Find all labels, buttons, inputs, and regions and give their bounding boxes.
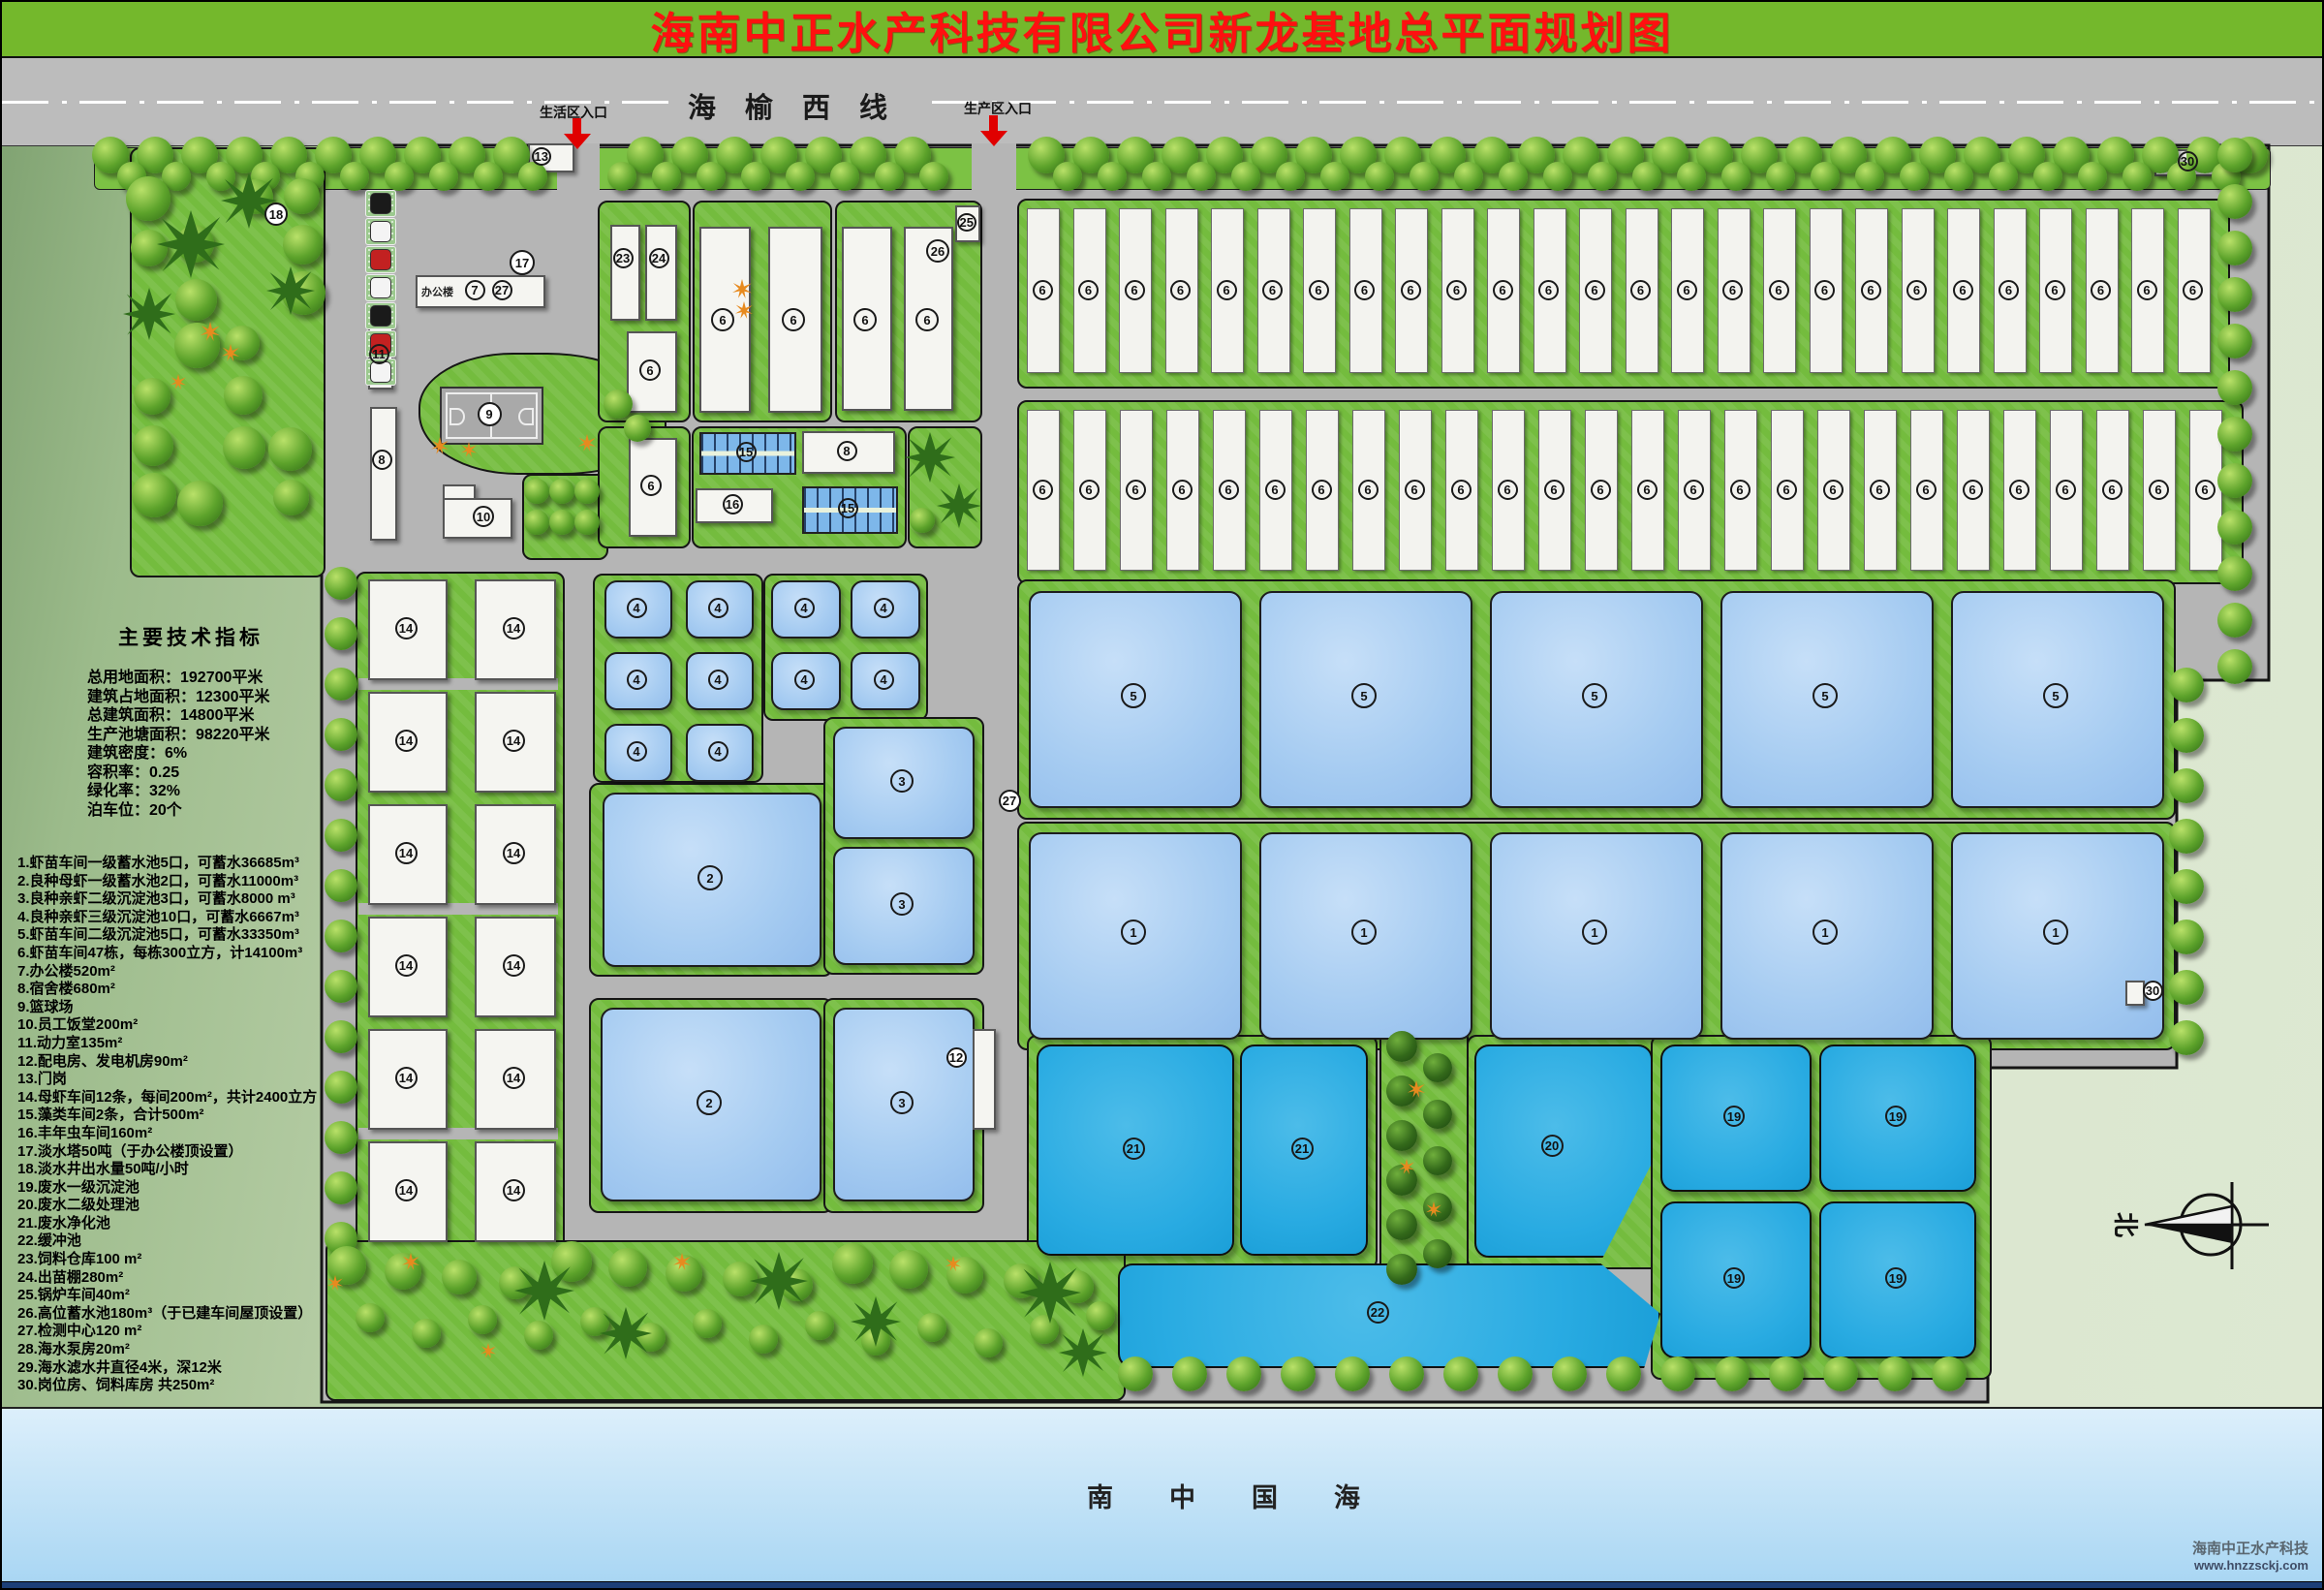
legend-item: 4.良种亲虾三级沉淀池10口，可蓄水6667m³	[17, 909, 317, 927]
marker-water-tower: 17	[510, 250, 535, 275]
tree-icon	[2169, 869, 2204, 904]
tree-icon	[356, 1303, 385, 1332]
tech-indicators-block: 主要技术指标 总用地面积：192700平米建筑占地面积：12300平米总建筑面积…	[87, 622, 270, 820]
highway-name-label: 海榆西线	[680, 85, 924, 126]
marker-workshop: 6	[1544, 480, 1565, 500]
tree-icon	[830, 162, 859, 191]
marker-pond3: 3	[890, 1091, 914, 1114]
tree-icon	[1142, 162, 1171, 191]
footer-bar	[2, 1581, 2322, 1590]
legend-item: 23.饲料仓库100 m²	[17, 1251, 317, 1269]
marker-workshop: 6	[1405, 480, 1425, 500]
legend-item: 8.宿舍楼680m²	[17, 981, 317, 999]
marker-pond21: 21	[1291, 1138, 1314, 1160]
marker-feed-warehouse: 23	[613, 248, 634, 268]
tree-icon	[1226, 1356, 1261, 1391]
tree-icon	[1098, 162, 1127, 191]
tree-icon	[325, 768, 357, 801]
tree-icon	[1606, 1356, 1641, 1391]
tree-icon	[177, 481, 223, 526]
site-plan-page: 海南中正水产科技有限公司新龙基地总平面规划图 海榆西线 生活区入口 生产区入口 …	[0, 0, 2324, 1590]
marker-workshop: 6	[711, 308, 734, 331]
marker-workshop: 6	[853, 308, 877, 331]
office-label: 办公楼	[421, 284, 453, 299]
legend-item: 29.海水滤水井直径4米，深12米	[17, 1359, 317, 1378]
tree-icon	[549, 479, 574, 504]
marker-pond4: 4	[627, 670, 647, 690]
tree-icon	[1410, 162, 1439, 191]
tree-icon	[2169, 718, 2204, 753]
tree-icon	[1944, 162, 1973, 191]
tech-line: 绿化率：32%	[87, 782, 270, 801]
tree-icon	[133, 425, 173, 466]
legend-item: 27.检测中心120 m²	[17, 1323, 317, 1341]
tree-icon	[1811, 162, 1840, 191]
tree-icon	[284, 178, 320, 214]
tree-icon	[2217, 184, 2252, 219]
marker-workshop: 6	[1823, 480, 1844, 500]
tree-icon	[1423, 1053, 1452, 1082]
entrance-right-arrowhead-icon	[980, 131, 1007, 146]
tree-icon	[2217, 138, 2252, 172]
watermark-url: www.hnzzsckj.com	[2192, 1557, 2309, 1574]
marker-pond3: 3	[890, 769, 914, 793]
marker-workshop: 6	[1953, 280, 1973, 300]
marker-pond4: 4	[874, 598, 894, 618]
tree-icon	[429, 162, 458, 191]
marker-workshop: 6	[1916, 480, 1937, 500]
tree-icon	[1030, 1315, 1059, 1344]
marker-workshop: 6	[2056, 480, 2076, 500]
tree-icon	[875, 162, 904, 191]
marker-workshop: 6	[1125, 280, 1145, 300]
tree-icon	[2217, 603, 2252, 638]
legend-item: 20.废水二级处理池	[17, 1197, 317, 1215]
marker-workshop: 6	[1170, 280, 1191, 300]
marker-workshop: 6	[1219, 480, 1239, 500]
tree-icon	[1823, 1356, 1858, 1391]
marker-workshop: 6	[2045, 280, 2065, 300]
marker-workshop: 6	[1401, 280, 1421, 300]
marker-pond1: 1	[1351, 920, 1377, 945]
tree-icon	[1715, 1356, 1750, 1391]
marker-workshop: 6	[1999, 280, 2019, 300]
tree-icon	[624, 415, 651, 442]
legend-item: 26.高位蓄水池180m³（于已建车间屋顶设置）	[17, 1305, 317, 1324]
marker-workshop: 6	[1451, 480, 1472, 500]
tree-icon	[697, 162, 726, 191]
tree-icon	[2217, 510, 2252, 545]
tree-icon	[1386, 1209, 1417, 1240]
tree-icon	[1454, 162, 1483, 191]
marker-workshop: 6	[1677, 280, 1697, 300]
marker-testing-center: 27	[492, 280, 512, 300]
marker-workshop: 6	[2183, 280, 2203, 300]
tree-icon	[2169, 1020, 2204, 1055]
marker-workshop: 6	[1684, 480, 1704, 500]
marker-workshop: 6	[1637, 480, 1658, 500]
marker-power-distribution: 12	[946, 1047, 967, 1068]
tree-icon	[974, 1328, 1003, 1357]
tree-icon	[325, 1020, 357, 1053]
legend-item: 9.篮球场	[17, 999, 317, 1017]
tree-icon	[1118, 1356, 1153, 1391]
tech-indicators-lines: 总用地面积：192700平米建筑占地面积：12300平米总建筑面积：14800平…	[87, 669, 270, 820]
tree-icon	[175, 279, 217, 321]
tree-icon	[1231, 162, 1260, 191]
tree-icon	[1660, 1356, 1695, 1391]
marker-workshop: 6	[2137, 280, 2157, 300]
marker-pond5: 5	[1351, 683, 1377, 708]
tree-icon	[910, 508, 935, 533]
tree-icon	[1389, 1356, 1424, 1391]
marker-store-house: 30	[2178, 151, 2198, 171]
tree-icon	[889, 1250, 928, 1289]
tree-icon	[2169, 668, 2204, 702]
legend-item: 24.出苗棚280m²	[17, 1269, 317, 1288]
tree-icon	[1423, 1100, 1452, 1129]
marker-brine-shrimp: 16	[723, 494, 743, 514]
marker-mother-shrimp: 14	[503, 730, 525, 752]
marker-basketball-court: 9	[478, 402, 502, 426]
tree-icon	[1335, 1356, 1370, 1391]
tree-icon	[2169, 819, 2204, 854]
marker-pond4: 4	[627, 598, 647, 618]
marker-dormitory2: 8	[837, 441, 857, 461]
marker-pond4: 4	[627, 741, 647, 762]
tree-icon	[126, 176, 170, 221]
entrance-left-arrowhead-icon	[564, 134, 591, 149]
power-distribution-building	[973, 1029, 996, 1130]
tree-icon	[1855, 162, 1884, 191]
tree-icon	[518, 162, 547, 191]
tech-line: 总用地面积：192700平米	[87, 669, 270, 688]
tech-line: 容积率：0.25	[87, 764, 270, 783]
marker-mother-shrimp: 14	[503, 954, 525, 977]
marker-workshop: 6	[2091, 280, 2111, 300]
marker-pond19: 19	[1885, 1106, 1906, 1127]
tree-icon	[524, 1321, 553, 1350]
marker-pond4: 4	[874, 670, 894, 690]
marker-pond19: 19	[1723, 1106, 1745, 1127]
marker-pond1: 1	[1582, 920, 1607, 945]
tree-icon	[693, 1309, 722, 1338]
tree-icon	[223, 426, 265, 469]
tree-icon	[1989, 162, 2018, 191]
legend-item: 28.海水泵房20m²	[17, 1341, 317, 1359]
tree-icon	[805, 1311, 834, 1340]
tree-icon	[327, 1246, 366, 1285]
feed-warehouse	[610, 225, 640, 321]
marker-workshop: 6	[1309, 280, 1329, 300]
tree-icon	[325, 970, 357, 1003]
tree-icon	[325, 718, 357, 751]
car-icon	[370, 193, 391, 214]
tree-icon	[524, 510, 549, 535]
store-house-east	[2125, 981, 2145, 1006]
marker-workshop: 6	[1354, 280, 1375, 300]
marker-workshop: 6	[1446, 280, 1467, 300]
marker-pond4: 4	[794, 598, 815, 618]
marker-pond19: 19	[1885, 1267, 1906, 1289]
legend-item: 15.藻类车间2条，合计500m²	[17, 1107, 317, 1125]
marker-algae: 15	[838, 498, 858, 518]
north-compass-icon: 北	[2085, 1176, 2288, 1283]
watermark-company: 海南中正水产科技	[2192, 1541, 2309, 1557]
marker-workshop: 6	[782, 308, 805, 331]
marker-pond4: 4	[708, 670, 728, 690]
marker-workshop: 6	[1033, 480, 1053, 500]
marker-canteen: 10	[473, 506, 494, 527]
entrance-right-arrow-icon	[989, 115, 998, 131]
tree-icon	[2033, 162, 2062, 191]
marker-workshop: 6	[1079, 480, 1100, 500]
tree-icon	[2123, 162, 2152, 191]
tree-icon	[604, 390, 633, 419]
tree-icon	[2217, 277, 2252, 312]
car-icon	[370, 249, 391, 270]
tree-icon	[385, 162, 414, 191]
marker-pond4: 4	[708, 598, 728, 618]
marker-store-house-east: 30	[2143, 981, 2163, 1001]
marker-workshop: 6	[1033, 280, 1053, 300]
tree-icon	[273, 480, 309, 515]
tree-icon	[1498, 1356, 1533, 1391]
tree-icon	[1443, 1356, 1478, 1391]
tree-icon	[1281, 1356, 1316, 1391]
tree-icon	[1423, 1146, 1452, 1175]
watermark: 海南中正水产科技 www.hnzzsckj.com	[2192, 1541, 2309, 1574]
tree-icon	[2217, 463, 2252, 498]
sea-name-label: 南中国海	[1087, 1477, 1416, 1514]
legend-item: 17.淡水塔50吨（于办公楼顶设置）	[17, 1143, 317, 1162]
tree-icon	[283, 225, 323, 265]
tree-icon	[325, 1071, 357, 1104]
tree-icon	[832, 1243, 873, 1284]
legend-item: 6.虾苗车间47栋，每栋300立方，计14100m³	[17, 945, 317, 963]
tree-icon	[325, 617, 357, 650]
tree-icon	[2217, 231, 2252, 265]
tree-icon	[1386, 1031, 1417, 1062]
marker-workshop: 6	[1262, 280, 1283, 300]
marker-workshop: 6	[1493, 280, 1513, 300]
legend-item: 13.门岗	[17, 1071, 317, 1089]
legend-item: 22.缓冲池	[17, 1232, 317, 1251]
tree-icon	[1386, 1120, 1417, 1151]
tree-icon	[2169, 768, 2204, 803]
marker-office: 7	[465, 280, 485, 300]
page-title: 海南中正水产科技有限公司新龙基地总平面规划图	[650, 0, 1673, 61]
tree-icon	[2217, 649, 2252, 684]
tree-icon	[2217, 556, 2252, 591]
tree-icon	[442, 1260, 477, 1294]
tree-icon	[412, 1319, 441, 1348]
tree-icon	[741, 162, 770, 191]
marker-workshop: 6	[1498, 480, 1518, 500]
marker-workshop: 6	[1591, 480, 1611, 500]
tree-icon	[1187, 162, 1216, 191]
tech-indicators-title: 主要技术指标	[118, 622, 270, 651]
tree-icon	[134, 378, 170, 415]
tree-icon	[325, 567, 357, 600]
marker-workshop: 6	[1906, 280, 1927, 300]
marker-workshop: 6	[1861, 280, 1881, 300]
marker-pond4: 4	[794, 670, 815, 690]
tree-icon	[2078, 162, 2107, 191]
legend-item: 19.废水一级沉淀池	[17, 1179, 317, 1198]
marker-pond19: 19	[1723, 1267, 1745, 1289]
tree-icon	[325, 869, 357, 902]
tree-icon	[2217, 324, 2252, 359]
marker-pond4: 4	[708, 741, 728, 762]
tree-icon	[2217, 417, 2252, 452]
marker-mother-shrimp: 14	[395, 954, 418, 977]
tree-icon	[524, 479, 549, 504]
tree-icon	[132, 473, 176, 517]
road	[972, 143, 1016, 192]
tree-icon	[1276, 162, 1305, 191]
tree-icon	[608, 1248, 647, 1287]
car-icon	[370, 361, 391, 383]
legend-block: 1.虾苗车间一级蓄水池5口，可蓄水36685m³2.良种母虾一级蓄水池2口，可蓄…	[17, 855, 317, 1395]
legend-item: 5.虾苗车间二级沉淀池5口，可蓄水33350m³	[17, 926, 317, 945]
tree-icon	[325, 819, 357, 852]
header-band: 海南中正水产科技有限公司新龙基地总平面规划图	[2, 2, 2322, 58]
tree-icon	[749, 1325, 778, 1354]
marker-workshop: 6	[1172, 480, 1193, 500]
seedling-shed	[645, 225, 677, 321]
marker-workshop: 6	[639, 359, 661, 381]
marker-pond3: 3	[890, 892, 914, 916]
marker-pond5: 5	[2043, 683, 2068, 708]
legend-item: 30.岗位房、饲料库房 共250m²	[17, 1377, 317, 1395]
tree-icon	[474, 162, 503, 191]
marker-workshop: 6	[1722, 280, 1743, 300]
marker-mother-shrimp: 14	[503, 842, 525, 864]
marker-workshop: 6	[2009, 480, 2030, 500]
tree-icon	[574, 510, 600, 535]
legend-item: 11.动力室135m²	[17, 1035, 317, 1053]
tree-icon	[723, 1262, 758, 1296]
tree-icon	[1588, 162, 1617, 191]
legend-item: 25.锅炉车间40m²	[17, 1287, 317, 1305]
tech-line: 建筑占地面积：12300平米	[87, 688, 270, 707]
tree-icon	[1061, 1270, 1094, 1303]
legend-item: 2.良种母虾一级蓄水池2口，可蓄水11000m³	[17, 873, 317, 891]
tree-icon	[1721, 162, 1751, 191]
marker-algae: 15	[736, 442, 757, 462]
tech-line: 建筑密度：6%	[87, 744, 270, 764]
north-label: 北	[2111, 1212, 2140, 1237]
marker-workshop: 6	[1777, 480, 1797, 500]
tree-icon	[2169, 920, 2204, 954]
tree-icon	[1053, 162, 1082, 191]
entrance-right-label: 生产区入口	[964, 99, 1032, 118]
marker-power-room: 11	[369, 344, 389, 364]
car-icon	[370, 305, 391, 327]
tree-icon	[325, 920, 357, 952]
tree-icon	[1086, 1301, 1115, 1330]
marker-workshop: 6	[1265, 480, 1286, 500]
tree-icon	[1320, 162, 1349, 191]
marker-mother-shrimp: 14	[503, 1067, 525, 1089]
tree-icon	[1365, 162, 1394, 191]
marker-workshop: 6	[640, 475, 662, 496]
marker-workshop: 6	[2195, 480, 2216, 500]
tree-icon	[1769, 1356, 1804, 1391]
marker-workshop: 6	[1730, 480, 1751, 500]
tree-icon	[1552, 1356, 1587, 1391]
tree-icon	[919, 162, 948, 191]
marker-pond5: 5	[1121, 683, 1146, 708]
tree-icon	[468, 1305, 497, 1334]
tree-icon	[224, 376, 263, 415]
marker-workshop: 6	[1630, 280, 1651, 300]
tree-icon	[499, 1266, 532, 1299]
marker-junction: 27	[999, 790, 1021, 812]
marker-workshop: 6	[1358, 480, 1379, 500]
entrance-left-arrow-icon	[573, 118, 581, 134]
tree-icon	[1632, 162, 1661, 191]
legend-item: 12.配电房、发电机房90m²	[17, 1053, 317, 1072]
tree-icon	[1499, 162, 1528, 191]
tree-icon	[325, 1171, 357, 1204]
legend-item: 7.办公楼520m²	[17, 963, 317, 982]
tree-icon	[917, 1313, 946, 1342]
marker-workshop: 6	[1078, 280, 1099, 300]
car-icon	[370, 221, 391, 242]
tree-icon	[1877, 1356, 1912, 1391]
marker-pond22: 22	[1367, 1301, 1389, 1324]
marker-pond21: 21	[1123, 1138, 1145, 1160]
legend-item: 10.员工饭堂200m²	[17, 1016, 317, 1035]
tree-icon	[607, 162, 636, 191]
legend-item: 1.虾苗车间一级蓄水池5口，可蓄水36685m³	[17, 855, 317, 873]
tree-icon	[1677, 162, 1706, 191]
marker-pond1: 1	[2043, 920, 2068, 945]
marker-freshwater-well: 18	[264, 203, 288, 226]
tech-line: 泊车位：20个	[87, 801, 270, 821]
tech-line: 总建筑面积：14800平米	[87, 706, 270, 726]
legend-item: 3.良种亲虾二级沉淀池3口，可蓄水8000 m³	[17, 890, 317, 909]
tree-icon	[551, 1241, 592, 1282]
tree-icon	[1543, 162, 1572, 191]
car-icon	[370, 277, 391, 298]
marker-pond5: 5	[1582, 683, 1607, 708]
marker-seedling-shed: 24	[649, 248, 669, 268]
map-layer: 1813办公楼727171189102324666662526615816156…	[2, 2, 2324, 1590]
tech-line: 生产池塘面积：98220平米	[87, 726, 270, 745]
marker-gatehouse: 13	[532, 147, 551, 166]
marker-mother-shrimp: 14	[395, 730, 418, 752]
tree-icon	[580, 1307, 609, 1336]
legend-item: 18.淡水井出水量50吨/小时	[17, 1161, 317, 1179]
tree-icon	[574, 479, 600, 504]
marker-workshop: 6	[2149, 480, 2169, 500]
marker-mother-shrimp: 14	[395, 1179, 418, 1201]
tree-icon	[325, 1121, 357, 1154]
marker-pond20: 20	[1541, 1135, 1564, 1157]
tree-icon	[268, 427, 312, 471]
marker-workshop: 6	[1870, 480, 1890, 500]
tree-icon	[1932, 1356, 1967, 1391]
tree-icon	[1766, 162, 1795, 191]
marker-workshop: 6	[1769, 280, 1789, 300]
marker-pond2: 2	[697, 1090, 722, 1115]
tree-icon	[1172, 1356, 1207, 1391]
marker-workshop: 6	[1814, 280, 1835, 300]
marker-pond1: 1	[1121, 920, 1146, 945]
